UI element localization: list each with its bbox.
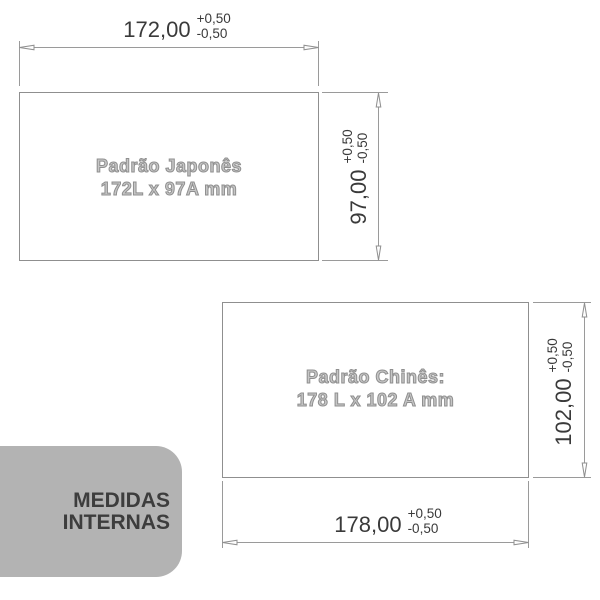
japanese-standard-name: Padrão Japonês	[19, 155, 319, 178]
tolerance-plus: +0,50	[408, 506, 442, 521]
dimension-value: 172,00	[123, 19, 190, 41]
tolerance-plus: +0,50	[340, 129, 355, 163]
tolerance-minus: -0,50	[355, 129, 370, 163]
arrowhead-right-icon	[514, 540, 529, 545]
badge-line2: INTERNAS	[63, 512, 170, 534]
diagram-canvas: Padrão Japonês 172L x 97A mm 172,00 +0,5…	[0, 0, 600, 600]
japanese-standard-size: 172L x 97A mm	[19, 178, 319, 201]
japanese-standard-label: Padrão Japonês 172L x 97A mm	[19, 155, 319, 201]
dimension-value: 97,00	[348, 170, 370, 225]
arrowhead-left-icon	[223, 540, 238, 545]
japanese-height-dimension: 97,00 +0,50 -0,50	[340, 129, 370, 224]
arrowhead-left-icon	[20, 45, 35, 50]
arrowhead-down-icon	[376, 246, 381, 260]
dimension-tolerance: +0,50 -0,50	[408, 506, 442, 536]
dimension-tolerance: +0,50 -0,50	[545, 338, 575, 372]
arrowhead-up-icon	[582, 303, 587, 317]
tolerance-plus: +0,50	[197, 11, 231, 26]
chinese-standard-size: 178 L x 102 A mm	[222, 389, 529, 412]
arrowhead-down-icon	[582, 463, 587, 477]
chinese-height-dimension: 102,00 +0,50 -0,50	[545, 338, 575, 445]
dimension-tolerance: +0,50 -0,50	[197, 11, 231, 41]
medidas-internas-badge: MEDIDAS INTERNAS	[0, 446, 182, 577]
dimension-value: 178,00	[334, 514, 401, 536]
dimension-value: 102,00	[553, 378, 575, 445]
chinese-standard-label: Padrão Chinês: 178 L x 102 A mm	[222, 366, 529, 412]
arrowhead-right-icon	[304, 45, 319, 50]
chinese-standard-name: Padrão Chinês:	[222, 366, 529, 389]
tolerance-plus: +0,50	[545, 338, 560, 372]
tolerance-minus: -0,50	[560, 338, 575, 372]
chinese-width-dimension: 178,00 +0,50 -0,50	[238, 506, 538, 536]
dimension-tolerance: +0,50 -0,50	[340, 129, 370, 163]
arrowhead-up-icon	[376, 93, 381, 107]
tolerance-minus: -0,50	[197, 26, 231, 41]
tolerance-minus: -0,50	[408, 521, 442, 536]
badge-line1: MEDIDAS	[73, 490, 170, 512]
japanese-width-dimension: 172,00 +0,50 -0,50	[27, 11, 327, 41]
